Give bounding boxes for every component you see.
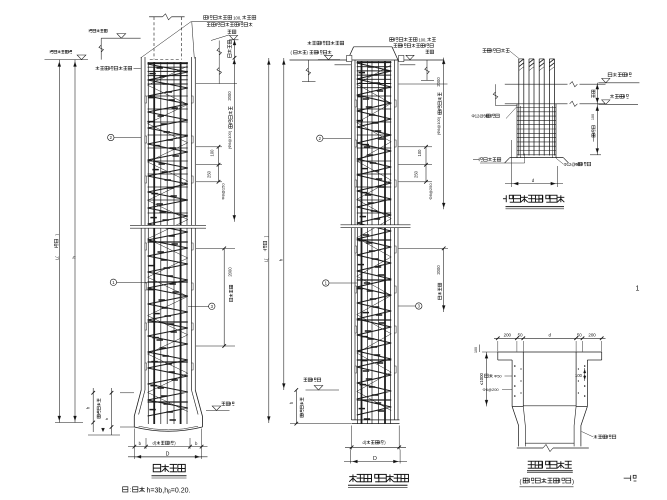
svg-text:Φ8@150: Φ8@150 <box>221 183 226 200</box>
svg-text:50: 50 <box>577 333 582 338</box>
svg-text:50: 50 <box>518 333 523 338</box>
svg-text:2000: 2000 <box>228 267 233 277</box>
svg-text:(Φ6@100): (Φ6@100) <box>227 130 232 149</box>
svg-text:2000: 2000 <box>227 91 232 101</box>
svg-text:D: D <box>166 452 170 458</box>
svg-text:L(: L( <box>263 258 268 262</box>
svg-text:(Φ6@100): (Φ6@100) <box>436 116 441 135</box>
svg-text:d(: d( <box>153 441 157 446</box>
svg-text:250: 250 <box>207 170 212 178</box>
svg-text:100: 100 <box>417 149 422 157</box>
svg-text:100,: 100, <box>233 15 241 20</box>
svg-text:100: 100 <box>210 149 215 157</box>
svg-text:100: 100 <box>474 347 478 353</box>
svg-text:d(: d( <box>363 440 367 445</box>
svg-text:2000: 2000 <box>436 265 441 275</box>
svg-text:Φ12@50: Φ12@50 <box>472 114 489 119</box>
svg-text:≤1000: ≤1000 <box>479 372 484 385</box>
svg-text:Φ50: Φ50 <box>494 374 502 379</box>
svg-text:h=3b,hᵦ=0.20.: h=3b,hᵦ=0.20. <box>147 487 191 494</box>
svg-text:250: 250 <box>414 170 419 178</box>
svg-text:D: D <box>373 456 377 462</box>
svg-text:100: 100 <box>591 114 595 120</box>
svg-text:1: 1 <box>636 286 640 293</box>
svg-text:100,: 100, <box>419 37 427 42</box>
svg-text:100: 100 <box>575 373 583 378</box>
svg-text:2000: 2000 <box>436 77 441 87</box>
svg-text:(: ( <box>520 479 522 485</box>
svg-text:): ) <box>572 479 574 485</box>
svg-text:L(: L( <box>55 256 60 260</box>
svg-text:Φ6@200: Φ6@200 <box>483 387 500 392</box>
svg-text:h: h <box>105 418 109 420</box>
svg-text:200: 200 <box>588 333 596 338</box>
svg-text:Φ8@250: Φ8@250 <box>428 183 433 200</box>
svg-text:200: 200 <box>504 333 512 338</box>
